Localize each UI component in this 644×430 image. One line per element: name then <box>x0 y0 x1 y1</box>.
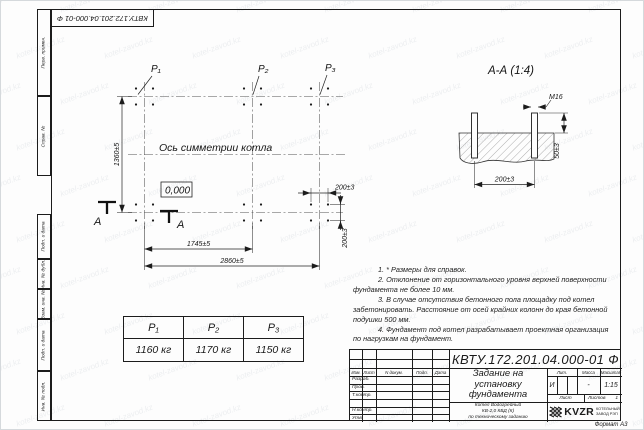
note-line: 4. Фундамент под котел разрабатывает про… <box>353 325 619 335</box>
margin-label: Инв. № подл. <box>42 381 47 411</box>
company-name: КОТЕЛЬНЫЙ ЗАВОД РЭП <box>596 407 620 416</box>
tb-title-line-3: фундамента <box>469 390 527 401</box>
tb-sheets-label: Листов <box>588 396 605 401</box>
loads-value-p1: 1160 кг <box>124 339 184 362</box>
note-line: 2. Отклонение от горизонтального уровня … <box>353 275 619 285</box>
tb-mass-header: Масса <box>577 368 600 376</box>
loads-header-row: Р₁ Р₂ Р₃ <box>124 317 304 339</box>
margin-label: Инв. № дубл. <box>42 259 47 289</box>
tb-row-utv: Утв. <box>350 414 378 422</box>
tb-company-cell: KVZR КОТЕЛЬНЫЙ ЗАВОД РЭП <box>547 402 622 422</box>
note-line: 3. В случае отсутствия бетонного пола пл… <box>353 295 619 305</box>
tb-row-nkontr: Н.контр. <box>350 407 378 415</box>
loads-header-p1: Р₁ <box>124 317 184 339</box>
loads-header-p2: Р₂ <box>184 317 244 339</box>
tb-col-izm: Изм. <box>350 368 362 376</box>
tb-subtitle-line-3: по техническому заданию <box>468 415 527 421</box>
tb-sheet-label: Лист <box>547 394 584 402</box>
watermark-text: kotel-zavod.kz <box>631 127 644 153</box>
watermark-text: kotel-zavod.kz <box>0 0 22 14</box>
margin-cell-sprav-no: Справ. № <box>37 96 51 176</box>
margin-label: Справ. № <box>42 125 47 147</box>
watermark-text: kotel-zavod.kz <box>0 173 22 199</box>
margin-cell-perv-primen: Перв. примен. <box>37 9 51 96</box>
margin-label: Перв. примен. <box>42 37 47 69</box>
watermark-text: kotel-zavod.kz <box>631 219 644 245</box>
tb-col-podp: Подп. <box>412 368 432 376</box>
margin-label: Подп. и дата <box>42 330 47 360</box>
loads-value-p2: 1170 кг <box>184 339 244 362</box>
note-line: по нагрузкам на фундамент. <box>353 334 619 344</box>
format-label: Формат А3 <box>573 422 644 428</box>
company-name-line-2: ЗАВОД РЭП <box>596 412 620 417</box>
note-line: 1. * Размеры для справок. <box>353 265 619 275</box>
tb-row-razrab: Разраб. <box>350 376 378 384</box>
tb-mass-value: - <box>577 376 600 394</box>
tb-lit-value: И <box>547 376 557 394</box>
tb-title: Задание на установку фундамента <box>449 368 547 402</box>
loads-value-row: 1160 кг 1170 кг 1150 кг <box>124 339 304 362</box>
company-abbr: KVZR <box>564 406 594 418</box>
margin-label: Подп. и дата <box>42 221 47 251</box>
margin-label: Взам. инв. № <box>42 289 47 319</box>
loads-table: Р₁ Р₂ Р₃ 1160 кг 1170 кг 1150 кг <box>123 316 304 362</box>
tb-scale-value: 1:15 <box>600 376 622 394</box>
margin-cell-inv-podl: Инв. № подл. <box>37 371 51 421</box>
margin-cell-inv-dubl: Инв. № дубл. <box>37 259 51 289</box>
note-line: подушки 500 мм. <box>353 315 619 325</box>
margin-cell-podp-data-1: Подп. и дата <box>37 214 51 259</box>
watermark-text: kotel-zavod.kz <box>0 81 22 107</box>
loads-header-p3: Р₃ <box>244 317 304 339</box>
tb-sheets-cell: Листов 1 <box>584 394 622 402</box>
tb-row-tkontr: Т.контр. <box>350 391 378 399</box>
margin-cell-vzam-inv: Взам. инв. № <box>37 289 51 319</box>
note-line: забетонировать. Расстояние от осей крайн… <box>353 305 619 315</box>
margin-cell-podp-data-2: Подп. и дата <box>37 319 51 371</box>
loads-value-p3: 1150 кг <box>244 339 304 362</box>
rotated-doc-number: КВТУ.172.201.04.000-01 Ф <box>57 14 148 23</box>
watermark-text: kotel-zavod.kz <box>631 311 644 337</box>
tb-col-list: Лист <box>362 368 376 376</box>
watermark-text: kotel-zavod.kz <box>0 265 22 291</box>
watermark-text: kotel-zavod.kz <box>0 357 22 383</box>
tb-col-docum: N докум. <box>376 368 412 376</box>
tb-row-prov: Пров. <box>350 384 378 392</box>
rotated-doc-number-box: КВТУ.172.201.04.000-01 Ф <box>51 9 154 27</box>
tb-doc-number: КВТУ.172.201.04.000-01 Ф <box>449 350 622 368</box>
tb-col-data: Дата <box>432 368 449 376</box>
title-block: Изм. Лист N докум. Подп. Дата Разраб. Пр… <box>349 349 621 421</box>
notes-block: 1. * Размеры для справок. 2. Отклонение … <box>353 265 619 344</box>
spring-icon <box>549 406 562 418</box>
watermark-text: kotel-zavod.kz <box>631 35 644 61</box>
note-line: фундамента не более 10 мм. <box>353 285 619 295</box>
tb-lit-header: Лит. <box>547 368 577 376</box>
tb-scale-header: Масштаб <box>600 368 622 376</box>
tb-sheets-value: 1 <box>615 396 618 401</box>
drawing-sheet: kotel-zavod.kzkotel-zavod.kzkotel-zavod.… <box>0 0 644 430</box>
tb-subtitle: Котел Водогрейный КВ-2,0 КБД (К) по техн… <box>449 402 547 422</box>
